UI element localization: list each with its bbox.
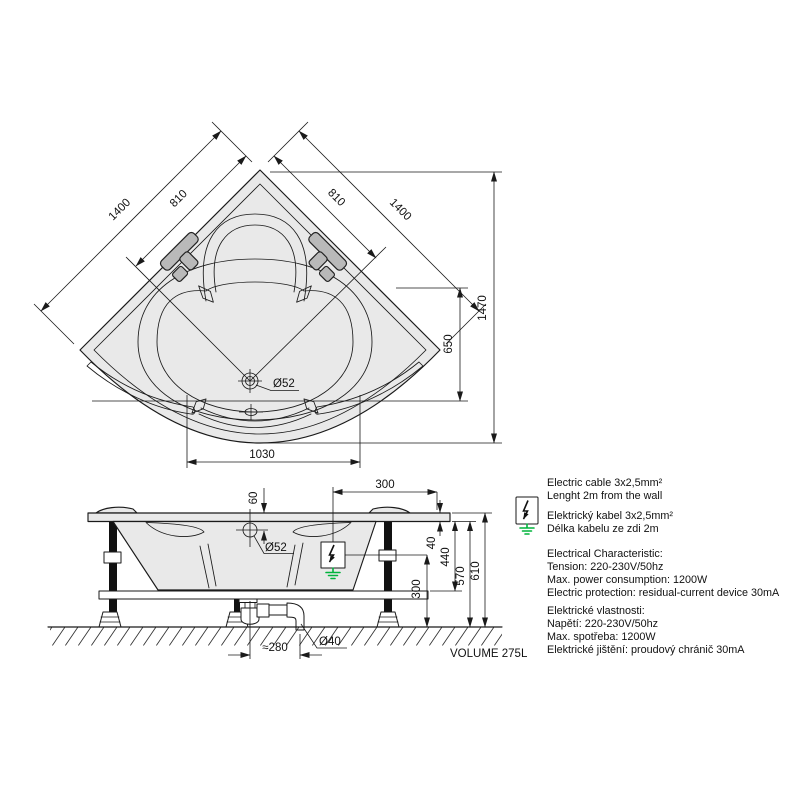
dim-40: 40 — [426, 537, 438, 550]
dim-650: 650 — [443, 334, 455, 353]
note-elec-en-title: Electrical Characteristic: — [547, 548, 663, 560]
dim-overflow-dia: Ø52 — [265, 542, 287, 554]
note-cable-en-1: Electric cable 3x2,5mm² — [547, 477, 663, 489]
dim-1470: 1470 — [477, 295, 489, 321]
leg-collar-right — [379, 550, 396, 561]
notes-panel: Electric cable 3x2,5mm² Lenght 2m from t… — [516, 477, 780, 656]
note-cable-cz-1: Elektrický kabel 3x2,5mm² — [547, 510, 673, 522]
dim-300-top: 300 — [375, 479, 394, 491]
dim-570: 570 — [455, 566, 467, 585]
dim-trap-offset: ≈280 — [262, 642, 288, 654]
dim-1400-left: 1400 — [107, 197, 134, 224]
section-view — [48, 507, 502, 645]
dim-810-left: 810 — [168, 188, 190, 210]
rim-bump-right — [369, 507, 410, 513]
note-elec-en-2: Max. power consumption: 1200W — [547, 574, 708, 586]
note-cable-cz-2: Délka kabelu ze zdi 2m — [547, 523, 659, 535]
earth-ground-icon-notes — [520, 524, 534, 534]
electric-shock-icon-notes — [516, 497, 538, 524]
volume-label: VOLUME 275L — [450, 648, 528, 660]
electric-shock-icon-section — [321, 542, 345, 568]
dim-440: 440 — [440, 547, 452, 566]
dim-waste-pipe-dia: Ø40 — [319, 636, 341, 648]
frame-rail — [99, 591, 428, 599]
leg-collar-left — [104, 552, 121, 563]
note-elec-cz-2: Max. spotřeba: 1200W — [547, 631, 656, 643]
dim-drain-dia-plan: Ø52 — [273, 378, 295, 390]
note-elec-en-3: Electric protection: residual-current de… — [547, 587, 780, 599]
note-elec-cz-3: Elektrické jištění: proudový chránič 30m… — [547, 644, 745, 656]
dim-1030: 1030 — [249, 449, 275, 461]
note-elec-en-1: Tension: 220-230V/50hz — [547, 561, 663, 573]
tub-outline-plan — [80, 170, 440, 443]
note-elec-cz-1: Napětí: 220-230V/50hz — [547, 618, 658, 630]
dim-810-right: 810 — [325, 187, 347, 209]
note-cable-en-2: Lenght 2m from the wall — [547, 490, 662, 502]
dim-610: 610 — [470, 561, 482, 580]
dim-300-right: 300 — [411, 579, 423, 598]
bathtub-technical-drawing: 1400 810 810 1400 1470 650 1030 Ø52 — [0, 0, 800, 800]
rim-section — [88, 513, 450, 522]
rim-bump-left — [96, 507, 137, 513]
dim-1400-right: 1400 — [387, 197, 414, 224]
waste-trap — [239, 599, 304, 630]
dim-60: 60 — [248, 492, 260, 505]
note-elec-cz-title: Elektrické vlastnosti: — [547, 605, 645, 617]
plan-view — [80, 170, 440, 443]
